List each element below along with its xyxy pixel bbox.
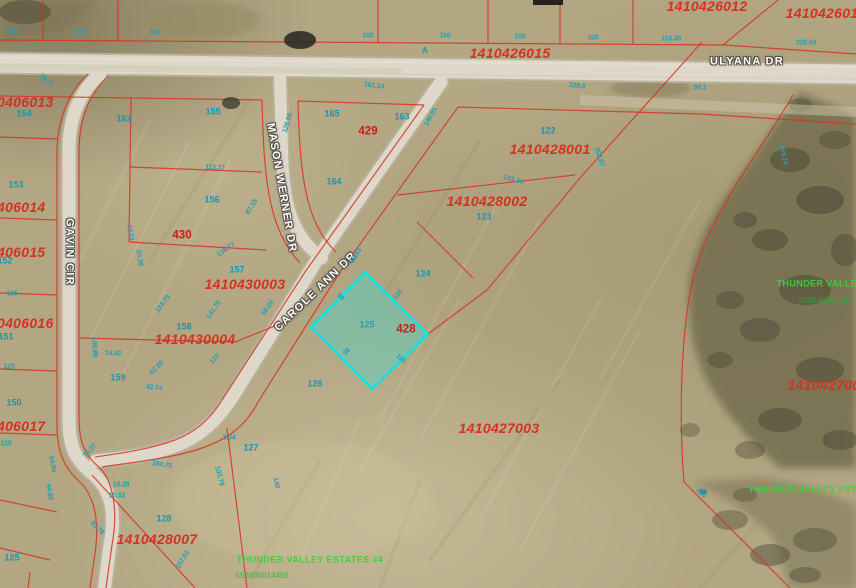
dimension: 125: [3, 364, 14, 371]
dimension: 64.01: [125, 224, 135, 241]
lot-number: 126: [307, 380, 322, 389]
lot-number: 125: [4, 554, 19, 563]
parcel-map-canvas[interactable]: 1410426012141042601141042601514104280011…: [0, 0, 856, 588]
lot-number: 151: [0, 333, 14, 342]
dimension: 161.14: [364, 81, 385, 91]
dimension: 262.67: [593, 146, 606, 167]
subdivision-id: 552000014455: [235, 572, 288, 580]
parcel-id: 1410428007: [117, 532, 198, 546]
dimension: 100: [6, 29, 17, 36]
dimension: 94: [335, 292, 345, 302]
parcel-id: 1410426012: [667, 0, 748, 13]
subdivision-id: 3025-0001280: [798, 297, 850, 305]
dimension: 112.77: [205, 164, 225, 172]
dimension: 20.38: [134, 249, 144, 266]
parcel-id: 1410426015: [470, 46, 551, 60]
dimension: 118.38: [661, 36, 681, 43]
dimension: 62.85: [149, 360, 166, 377]
dimension: 126.06: [282, 112, 295, 133]
road-name-carole-ann-dr: CAROLE ANN DR: [273, 250, 359, 333]
road-mark-a: A: [422, 47, 428, 55]
lot-number: 124: [415, 270, 430, 279]
dimension: 108.88: [90, 337, 99, 358]
parcel-id: 406014: [0, 200, 46, 214]
dimension: 100: [587, 35, 598, 42]
dimension: 18.28: [113, 482, 130, 489]
parcel-id: 1410428002: [447, 194, 528, 208]
lot-number: 165: [324, 110, 339, 119]
dimension: 125: [0, 441, 11, 448]
subdivision-name: THUNDER VALLEY ESTATES: [749, 486, 856, 495]
road-name-gavin-cir: GAVIN CIR: [64, 218, 75, 286]
dimension: 228.8: [568, 82, 585, 90]
dimension: 94.89: [44, 483, 54, 500]
dimension: 157.63: [175, 550, 192, 571]
dimension: 256: [695, 487, 708, 500]
dimension: 125: [6, 291, 17, 298]
lot-number: 152: [0, 257, 13, 266]
block-number: 429: [358, 126, 377, 138]
dimension: 184.75: [151, 460, 172, 470]
parcel-id: 1410428001: [510, 142, 591, 156]
dimension: 103.78: [213, 465, 225, 486]
dimension: 87.15: [245, 198, 259, 216]
lot-number: 122: [540, 127, 555, 136]
dimension: 74.42: [105, 351, 122, 358]
dimension: 110: [209, 353, 221, 366]
dimension: 229.84: [796, 40, 816, 47]
parcel-id: 1410430004: [155, 332, 236, 346]
dimension: 141.78: [205, 300, 222, 321]
block-number: 428: [396, 324, 415, 336]
lot-number: 156: [204, 196, 219, 205]
lot-number-selected: 125: [359, 321, 374, 330]
dimension: 116: [392, 289, 405, 302]
dimension: 565.74: [777, 144, 788, 165]
dimension: 100: [362, 33, 373, 40]
parcel-id: 1410430003: [205, 277, 286, 291]
dimension: 143.24: [502, 174, 523, 186]
parcel-id: 0406016: [0, 316, 54, 330]
lot-number: 153: [8, 181, 23, 190]
road-name-ulyana-dr: ULYANA DR: [710, 57, 784, 68]
lot-number: 158: [176, 323, 191, 332]
dimension: 15.52: [109, 493, 126, 500]
lot-number: 150: [6, 399, 21, 408]
lot-number: 128: [156, 515, 171, 524]
lot-number: 159: [110, 374, 125, 383]
road-name-mason-werner-dr: MASON WERNER DR: [264, 122, 298, 253]
dimension: 3.34: [223, 435, 236, 442]
dimension: 140.91: [423, 106, 439, 127]
dimension: 78.71: [37, 73, 54, 89]
dimension: 100: [149, 30, 160, 37]
dimension: 100: [514, 34, 525, 41]
lot-number: 164: [326, 178, 341, 187]
parcel-id: 141042601: [786, 6, 856, 20]
parcel-id: 0406013: [0, 95, 54, 109]
dimension: 100: [439, 33, 450, 40]
dimension: 98: [342, 347, 352, 357]
lot-number: 127: [243, 444, 258, 453]
dimension: 100: [74, 29, 85, 36]
dimension: 58.04: [260, 299, 275, 317]
lot-number: 154: [16, 110, 31, 119]
dimension: 42.74: [145, 384, 162, 392]
lot-number: 157: [229, 266, 244, 275]
parcel-id: 406017: [0, 419, 46, 433]
dimension: 124.79: [154, 294, 172, 314]
lot-number: 155: [205, 108, 220, 117]
lot-number: 162: [116, 115, 131, 124]
dimension: 54.1: [694, 85, 707, 92]
lot-number: 123: [476, 213, 491, 222]
lot-number: 163: [394, 113, 409, 122]
parcel-id: 141042700: [788, 378, 856, 392]
subdivision-name: THUNDER VALLEY ESTATES #4: [237, 556, 383, 565]
block-number: 430: [172, 230, 191, 242]
dimension: 64.89: [47, 455, 57, 472]
dimension: 140: [271, 477, 281, 490]
dimension: 101: [395, 353, 408, 366]
dimension: 76.37: [82, 443, 98, 460]
map-labels-layer: 1410426012141042601141042601514104280011…: [0, 0, 856, 588]
dimension: 138.77: [216, 241, 237, 258]
parcel-id: 1410427003: [459, 421, 540, 435]
subdivision-name: THUNDER VALLEY: [777, 280, 856, 289]
dimension: 93.78: [89, 520, 106, 537]
